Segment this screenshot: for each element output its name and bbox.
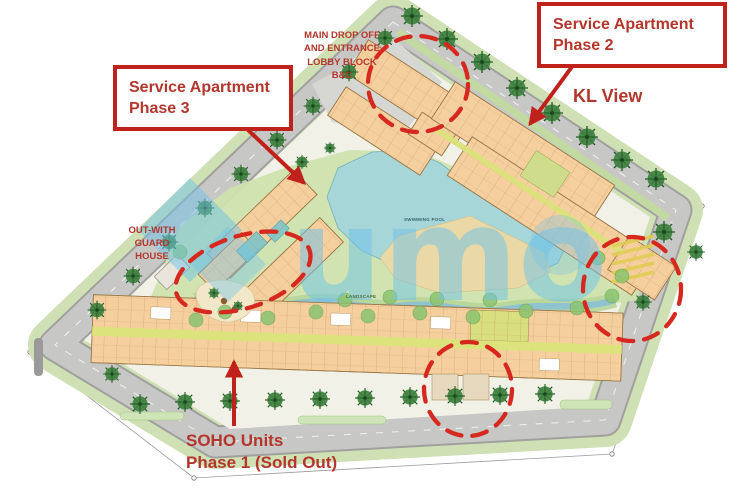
phase2-line1: Service Apartment xyxy=(553,14,711,35)
guard-line1: OUT-WITH xyxy=(119,225,185,238)
tree-icon xyxy=(653,221,675,243)
tree-icon xyxy=(324,142,336,154)
tree-icon xyxy=(634,293,652,311)
tree-icon xyxy=(124,267,143,286)
watermark-text: umo xyxy=(290,179,607,331)
tree-icon xyxy=(220,391,240,411)
dropoff-line3: LOBBY BLOCK B&C xyxy=(299,56,385,83)
dropoff-line1: MAIN DROP OFF xyxy=(299,29,385,42)
soho-units-label: SOHO Units Phase 1 (Sold Out) xyxy=(186,430,337,474)
tree-icon xyxy=(645,168,667,190)
guard-line2: GUARD xyxy=(119,238,185,251)
tree-icon xyxy=(295,155,309,169)
tree-icon xyxy=(175,392,195,412)
soho-line2: Phase 1 (Sold Out) xyxy=(186,452,337,474)
tree-icon xyxy=(401,5,423,27)
tree-icon xyxy=(310,389,330,409)
tree-icon xyxy=(265,390,285,410)
phase3-line2: Phase 3 xyxy=(129,98,277,119)
tree-icon xyxy=(268,131,287,150)
tree-icon xyxy=(130,394,150,414)
tree-icon xyxy=(611,149,633,171)
tree-icon xyxy=(445,386,465,406)
phase3-line1: Service Apartment xyxy=(129,77,277,98)
phase2-line2: Phase 2 xyxy=(553,35,711,56)
kl-view-label: KL View xyxy=(573,86,642,107)
tree-icon xyxy=(355,388,375,408)
phase3-callout-box: Service Apartment Phase 3 xyxy=(113,65,293,131)
tree-icon xyxy=(506,77,528,99)
site-plan-image: umo SWIMMING POOL LANDSCAPE Service Apar… xyxy=(0,0,738,489)
swimming-pool-label: SWIMMING POOL xyxy=(404,217,445,222)
phase2-callout-box: Service Apartment Phase 2 xyxy=(537,2,727,68)
guard-house-label: OUT-WITH GUARD HOUSE xyxy=(119,225,185,263)
dropoff-line2: AND ENTRANCE xyxy=(299,42,385,55)
tree-icon xyxy=(103,365,121,383)
tree-icon xyxy=(490,385,510,405)
entrance-marker xyxy=(34,338,43,376)
tree-icon xyxy=(535,384,555,404)
tree-icon xyxy=(304,97,323,116)
tree-icon xyxy=(88,301,107,320)
tree-icon xyxy=(576,126,598,148)
soho-line1: SOHO Units xyxy=(186,430,337,452)
landscape-label: LANDSCAPE xyxy=(346,294,376,299)
tree-icon xyxy=(687,243,705,261)
tree-icon xyxy=(400,387,420,407)
tree-icon xyxy=(471,51,493,73)
main-drop-off-label: MAIN DROP OFF AND ENTRANCE LOBBY BLOCK B… xyxy=(299,29,385,83)
tree-icon xyxy=(232,165,251,184)
guard-line3: HOUSE xyxy=(119,251,185,264)
